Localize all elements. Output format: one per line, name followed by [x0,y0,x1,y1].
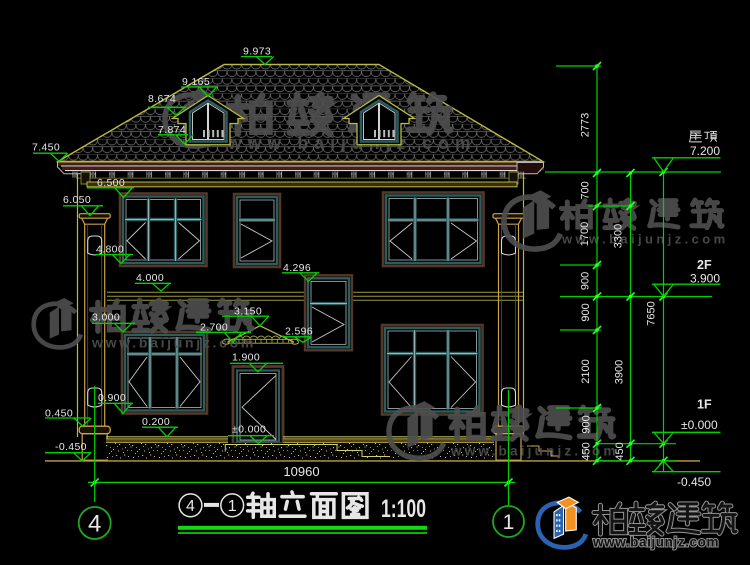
svg-text:±0.000: ±0.000 [232,424,266,436]
svg-text:0.900: 0.900 [98,392,126,404]
svg-text:1:100: 1:100 [381,495,426,523]
svg-text:2.596: 2.596 [285,326,313,338]
svg-text:-0.450: -0.450 [55,441,87,453]
svg-text:1700: 1700 [579,222,591,246]
svg-text:450: 450 [581,442,593,460]
svg-text:8.674: 8.674 [148,93,176,105]
svg-text:0.200: 0.200 [142,416,170,428]
svg-text:1: 1 [228,498,237,515]
svg-text:3.000: 3.000 [92,312,120,324]
svg-text:2F: 2F [697,258,712,272]
svg-text:7.450: 7.450 [32,142,60,154]
svg-text:450: 450 [614,442,626,460]
svg-text:6.050: 6.050 [63,194,91,206]
svg-text:4.800: 4.800 [96,244,124,256]
svg-text:9.973: 9.973 [243,46,271,58]
svg-text:3.900: 3.900 [690,272,720,286]
svg-text:3900: 3900 [614,360,626,384]
svg-text:3300: 3300 [613,224,625,248]
svg-text:900: 900 [580,303,592,321]
svg-text:4: 4 [88,511,101,538]
svg-text:900: 900 [580,272,592,290]
svg-text:700: 700 [580,181,592,199]
svg-text:-0.450: -0.450 [677,475,711,489]
svg-text:2773: 2773 [580,113,592,137]
svg-text:900: 900 [581,415,593,433]
svg-text:4: 4 [186,498,195,515]
svg-text:www.baijunjz.com: www.baijunjz.com [592,535,719,550]
svg-text:4.000: 4.000 [136,272,164,284]
svg-text:10960: 10960 [283,464,319,479]
svg-text:1F: 1F [697,398,712,412]
svg-text:www.baijunjz.com: www.baijunjz.com [91,335,256,351]
svg-text:2100: 2100 [580,359,592,383]
svg-text:1: 1 [503,511,515,534]
svg-text:7650: 7650 [646,301,658,325]
svg-text:1.900: 1.900 [232,352,260,364]
svg-text:www.baijunjz.com: www.baijunjz.com [450,444,619,459]
svg-text:www.baijunjz.com: www.baijunjz.com [227,133,477,153]
svg-text:±0.000: ±0.000 [681,418,718,432]
svg-text:9.165: 9.165 [182,76,210,88]
svg-text:7.200: 7.200 [690,144,720,158]
